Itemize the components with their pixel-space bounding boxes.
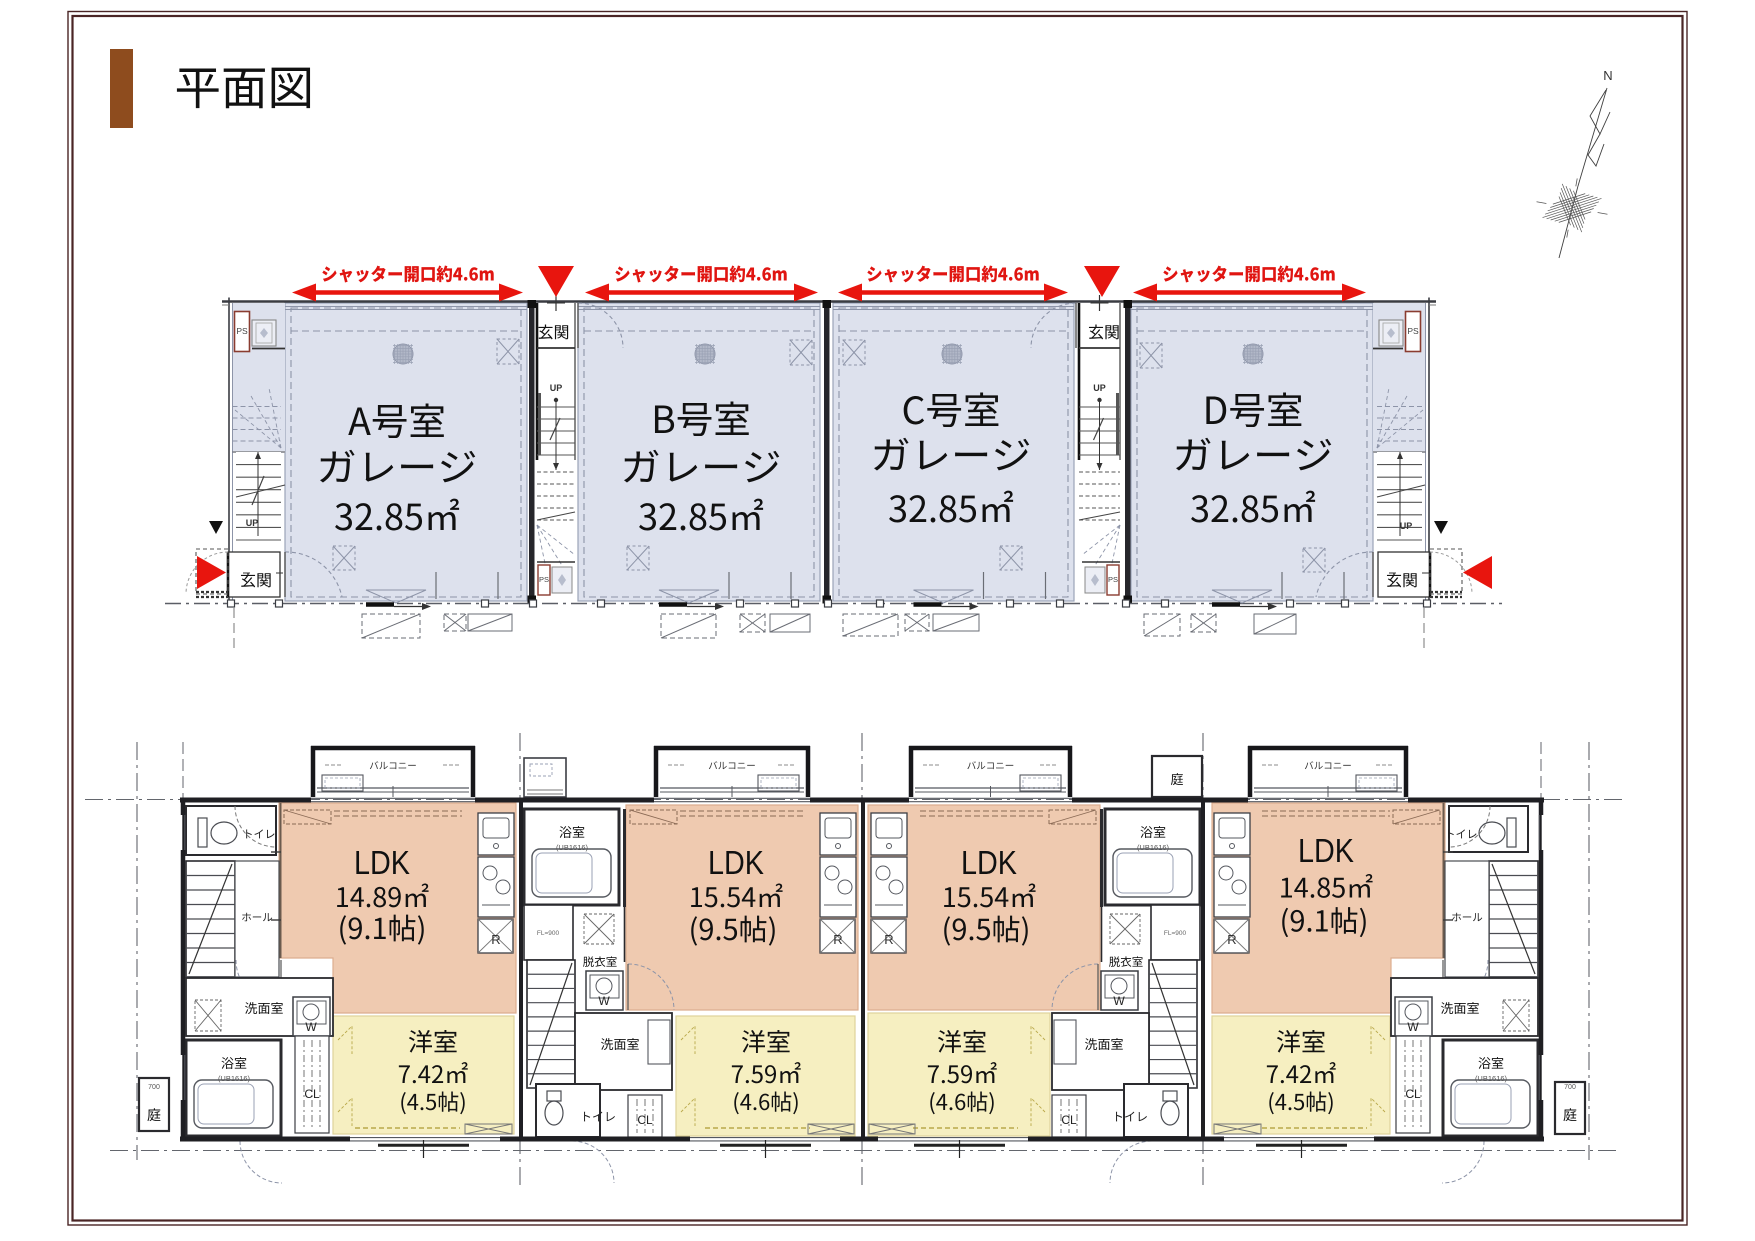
svg-text:N: N — [1603, 68, 1612, 83]
svg-text:PS: PS — [1407, 326, 1419, 336]
svg-text:(UB1616): (UB1616) — [1137, 843, 1170, 852]
svg-text:UP: UP — [1093, 383, 1106, 393]
svg-text:(UB1616): (UB1616) — [1475, 1074, 1508, 1083]
svg-text:PS: PS — [1108, 575, 1118, 584]
svg-text:PS: PS — [236, 326, 248, 336]
svg-text:LDK: LDK — [354, 844, 410, 881]
svg-text:FL=900: FL=900 — [1164, 930, 1187, 937]
svg-text:UP: UP — [246, 518, 259, 528]
svg-text:LDK: LDK — [1298, 832, 1354, 869]
svg-text:CL: CL — [304, 1087, 320, 1101]
svg-text:R: R — [833, 932, 842, 947]
svg-text:700: 700 — [148, 1084, 160, 1091]
svg-text:700: 700 — [1564, 1084, 1576, 1091]
svg-text:UP: UP — [1400, 521, 1413, 531]
svg-text:W: W — [598, 994, 610, 1008]
svg-text:CL: CL — [637, 1113, 653, 1127]
svg-text:(UB1616): (UB1616) — [556, 843, 589, 852]
svg-text:PS: PS — [539, 575, 549, 584]
svg-text:R: R — [884, 932, 893, 947]
svg-text:R: R — [491, 932, 500, 947]
svg-text:UP: UP — [550, 383, 563, 393]
svg-text:LDK: LDK — [708, 844, 764, 881]
svg-text:LDK: LDK — [961, 844, 1017, 881]
svg-text:W: W — [1407, 1020, 1419, 1034]
svg-text:CL: CL — [1405, 1087, 1421, 1101]
svg-text:(UB1616): (UB1616) — [218, 1074, 251, 1083]
svg-text:CL: CL — [1061, 1113, 1077, 1127]
svg-text:R: R — [1227, 932, 1236, 947]
svg-text:FL=900: FL=900 — [537, 930, 560, 937]
svg-text:W: W — [305, 1020, 317, 1034]
svg-text:W: W — [1113, 994, 1125, 1008]
